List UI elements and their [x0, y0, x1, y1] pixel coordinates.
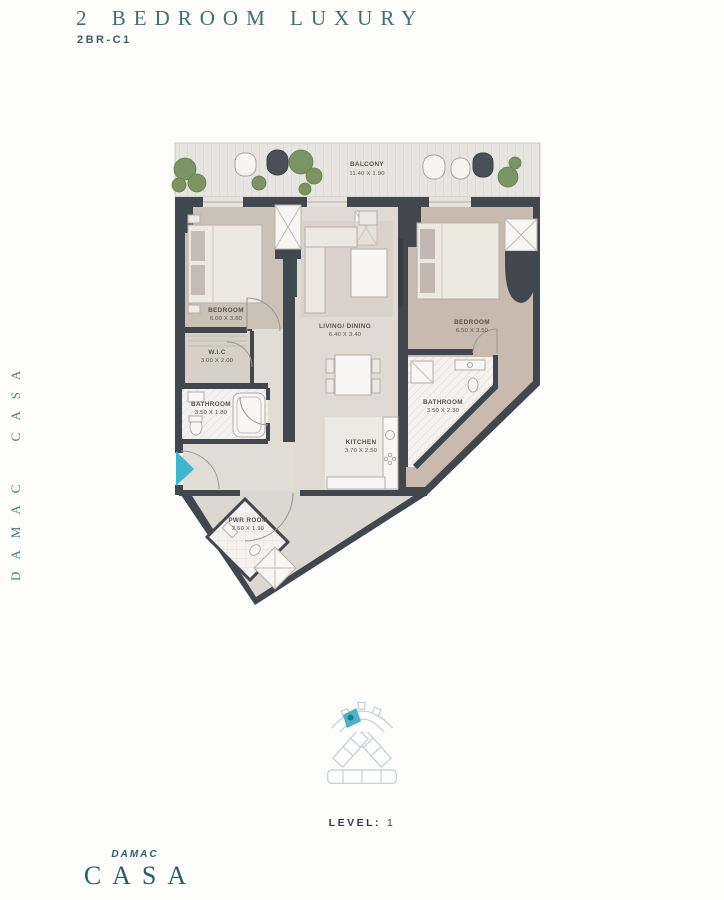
logo-damac-text: DAMAC: [70, 849, 200, 860]
tv-icon: [293, 251, 297, 297]
pwr-label: PWR ROOM: [228, 517, 267, 524]
level-label: LEVEL:: [329, 817, 381, 829]
bathroom1-dims: 3.50 X 1.80: [195, 410, 228, 416]
balcony-area: BALCONY 11.40 X 1.90: [172, 143, 540, 197]
bathroom1-label: BATHROOM: [191, 401, 231, 408]
bathroom2-label: BATHROOM: [423, 399, 463, 406]
living-dims: 6.40 X 3.40: [329, 332, 362, 338]
living-label: LIVING/ DINING: [319, 323, 371, 330]
page-title: 2 BEDROOM LUXURY: [76, 6, 424, 31]
bedroom2-label: BEDROOM: [454, 319, 490, 326]
logo-casa-text: CASA: [70, 861, 211, 891]
wic-label: W.I.C: [208, 349, 225, 356]
bedroom1-label: BEDROOM: [208, 307, 244, 314]
key-plan-unit-dot: [348, 715, 354, 721]
pwr-dims: 2.50 X 1.90: [232, 526, 265, 532]
balcony-label: BALCONY: [350, 161, 384, 168]
brand-logo: DAMAC CASA: [70, 849, 200, 891]
tv-icon: [398, 239, 403, 307]
balcony-dims: 11.40 X 1.90: [349, 171, 385, 177]
side-brand-text: DAMAC CASA: [8, 316, 24, 581]
level-indicator: LEVEL:1: [0, 817, 724, 829]
kitchen-dims: 3.70 X 2.50: [345, 448, 378, 454]
unit-code: 2BR-C1: [77, 34, 132, 46]
key-plan: [314, 690, 410, 790]
floor-plan: BALCONY 11.40 X 1.90: [155, 135, 560, 620]
bedroom2-dims: 6.50 X 3.50: [456, 328, 489, 334]
level-value: 1: [387, 817, 395, 829]
bedroom1-dims: 6.00 X 3.60: [210, 316, 243, 322]
floorplan-page: 2 BEDROOM LUXURY 2BR-C1 DAMAC CASA: [0, 0, 724, 900]
sofa-icon: [301, 211, 393, 317]
wic-dims: 3.00 X 2.00: [201, 358, 234, 364]
kitchen-label: KITCHEN: [346, 439, 377, 446]
bathroom2-dims: 3.50 X 2.30: [427, 408, 460, 414]
